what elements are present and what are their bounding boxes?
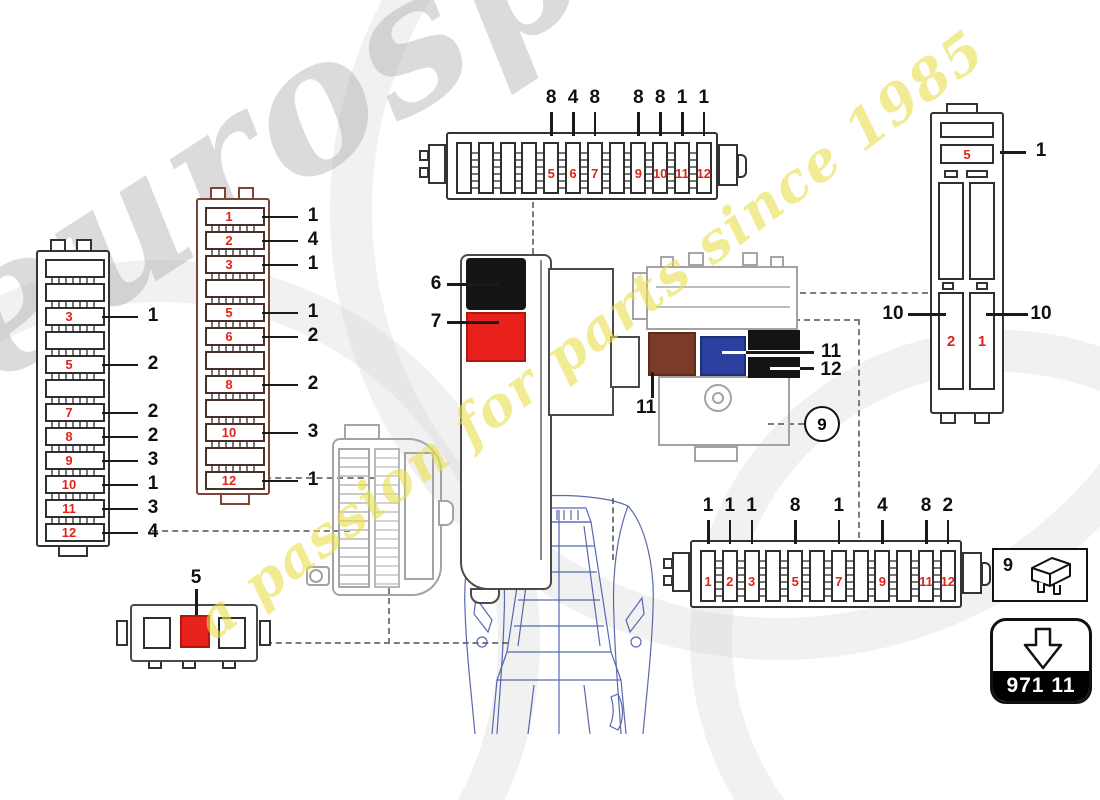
- leader-line: [195, 589, 198, 615]
- leader-line: [651, 372, 654, 398]
- fuse-slot: [456, 142, 472, 194]
- fuse-slot: 10: [652, 142, 668, 194]
- part-code: 971 11: [993, 671, 1089, 701]
- leader-line: [703, 112, 706, 136]
- fuse-slot: 8: [45, 427, 105, 446]
- mounting-ear: [962, 552, 982, 594]
- fuse-slot: [500, 142, 516, 194]
- leader-line: [681, 112, 684, 136]
- latch: [966, 170, 988, 178]
- fuse-panel-right: 5 2 1: [930, 112, 1004, 414]
- connector-line: [388, 588, 390, 644]
- fuse-slot: 9: [874, 550, 890, 602]
- fuse-number: 6: [569, 166, 576, 181]
- fuse-slot: 3: [205, 255, 265, 274]
- fuse-holder-lug: [438, 500, 454, 526]
- mounting-ear: [419, 167, 429, 178]
- fuse-slot: 5: [940, 144, 994, 164]
- mounting-ear: [737, 154, 747, 178]
- callout-3[interactable]: 3: [138, 496, 168, 520]
- fuse-number: 9: [65, 453, 72, 468]
- fuse-slot: 1: [205, 207, 265, 226]
- fuse-slot: [521, 142, 537, 194]
- assembly-knob-center: [712, 392, 724, 404]
- fuse-number: 2: [225, 233, 232, 248]
- fuse-holder-ribs: [374, 448, 400, 588]
- fuse-number: 5: [963, 147, 970, 162]
- fuse-number: 3: [225, 257, 232, 272]
- fuse-slot: [218, 617, 246, 649]
- callout-4[interactable]: 4: [298, 228, 328, 252]
- leader-line: [637, 112, 640, 136]
- fuse-panel-left: 3152728293101113124: [36, 250, 110, 547]
- fuse-number: 7: [65, 405, 72, 420]
- leader-line: [262, 240, 298, 243]
- fuse-slot: [45, 259, 105, 278]
- callout-1[interactable]: 1: [298, 300, 328, 324]
- leader-line: [102, 316, 138, 319]
- leader-line: [746, 351, 814, 354]
- fuse-slot: 9: [45, 451, 105, 470]
- relay-housing-foot: [470, 588, 500, 604]
- leader-line: [262, 432, 298, 435]
- fuse-number: 6: [225, 329, 232, 344]
- connector-line: [800, 292, 928, 294]
- fuse-number: 8: [225, 377, 232, 392]
- fuse-number: 5: [548, 166, 555, 181]
- callout-10-right[interactable]: 10: [1026, 302, 1056, 326]
- assembly-tab: [688, 252, 704, 266]
- leader-line: [102, 532, 138, 535]
- leader-line: [102, 364, 138, 367]
- leader-line: [925, 520, 928, 544]
- leader-line: [262, 336, 298, 339]
- fuse-slot: 6: [565, 142, 581, 194]
- leader-line: [659, 112, 662, 136]
- leader-line: [102, 436, 138, 439]
- fuse-number: 2: [947, 333, 955, 350]
- fuse-slot: [853, 550, 869, 602]
- fuse-strip-top: 58647898108111121: [446, 132, 718, 200]
- fuse-number: 10: [62, 477, 76, 492]
- callout-8[interactable]: 8: [780, 494, 810, 518]
- fuse-slot: 7: [831, 550, 847, 602]
- fuse-slot: [45, 331, 105, 350]
- fuse-number: 10: [653, 166, 667, 181]
- assembly-foot: [694, 446, 738, 462]
- leader-line: [102, 412, 138, 415]
- leader-line: [262, 312, 298, 315]
- leader-line: [947, 520, 950, 544]
- latch: [944, 170, 958, 178]
- fuse-slot: 1: [700, 550, 716, 602]
- bracket-fuse-11-blue: [700, 336, 746, 376]
- leader-line: [838, 520, 841, 544]
- mounting-ear: [428, 144, 446, 184]
- fuse-number: 7: [835, 574, 842, 589]
- leader-line: [447, 321, 499, 324]
- fuse-slot: [969, 182, 995, 280]
- mounting-ear: [718, 144, 738, 186]
- leader-line: [102, 484, 138, 487]
- fuse-slot: 5: [543, 142, 559, 194]
- fuse-number: 12: [697, 166, 711, 181]
- fuse-number: 9: [635, 166, 642, 181]
- fuse-slot: [205, 279, 265, 298]
- leader-line: [102, 460, 138, 463]
- fuse-number: 5: [65, 357, 72, 372]
- connector-line: [532, 202, 534, 254]
- fuse-slot: 8: [205, 375, 265, 394]
- fuse-slot: 11: [674, 142, 690, 194]
- callout-circle-9[interactable]: 9: [804, 406, 840, 442]
- callout-3[interactable]: 3: [138, 448, 168, 472]
- callout-1[interactable]: 1: [298, 468, 328, 492]
- callout-2[interactable]: 2: [138, 352, 168, 376]
- fuse-number: 3: [65, 309, 72, 324]
- callout-1[interactable]: 1: [824, 494, 854, 518]
- fuse-slot: [896, 550, 912, 602]
- fuse-number: 11: [919, 574, 933, 589]
- fuse-number: 5: [225, 305, 232, 320]
- fuse-slot: 7: [587, 142, 603, 194]
- fuse-slot: [205, 351, 265, 370]
- fuse-number: 9: [879, 574, 886, 589]
- fuse-slot: 5: [787, 550, 803, 602]
- leader-line: [751, 520, 754, 544]
- assembly-left-ear: [632, 272, 648, 320]
- leader-line: [1000, 151, 1026, 154]
- fuse-slot: 1: [969, 292, 995, 390]
- fuse-number: 2: [726, 574, 733, 589]
- fuse-slot: 2: [938, 292, 964, 390]
- leader-line: [986, 313, 1028, 316]
- callout-2[interactable]: 2: [138, 424, 168, 448]
- callout-5[interactable]: 5: [181, 566, 211, 590]
- fuse-slot: [765, 550, 781, 602]
- fuse-number: 12: [941, 574, 955, 589]
- bracket-fuse-12-black: [748, 330, 800, 350]
- mounting-lug: [116, 620, 128, 646]
- callout-1[interactable]: 1: [737, 494, 767, 518]
- leader-line: [729, 520, 732, 544]
- latch: [976, 282, 988, 290]
- mounting-ear: [663, 575, 673, 586]
- fuse-slot: 2: [205, 231, 265, 250]
- fuse-slot: [205, 399, 265, 418]
- fuse-slot: 12: [696, 142, 712, 194]
- callout-2[interactable]: 2: [298, 372, 328, 396]
- callout-1[interactable]: 1: [689, 86, 719, 110]
- callout-1[interactable]: 1: [138, 472, 168, 496]
- leader-line: [262, 384, 298, 387]
- mounting-lug: [259, 620, 271, 646]
- callout-4[interactable]: 4: [138, 520, 168, 544]
- callout-6[interactable]: 6: [421, 272, 451, 296]
- mounting-ear: [419, 150, 429, 161]
- leader-line: [262, 480, 298, 483]
- fuse-slot: [45, 379, 105, 398]
- arrow-down-icon: [1020, 627, 1066, 671]
- fuse-slot: 9: [630, 142, 646, 194]
- callout-8[interactable]: 8: [580, 86, 610, 110]
- assembly-top-box: [646, 266, 798, 330]
- callout-7[interactable]: 7: [421, 310, 451, 334]
- fuse-holder-ribs: [338, 448, 370, 588]
- callout-2[interactable]: 2: [298, 324, 328, 348]
- small-box-fuse-5: [180, 615, 210, 648]
- part-code-box: 971 11: [990, 618, 1092, 704]
- fuse-number: 7: [591, 166, 598, 181]
- fuse-slot: 10: [45, 475, 105, 494]
- fuse-slot: [940, 122, 994, 138]
- leader-line: [262, 264, 298, 267]
- fuse-number: 1: [704, 574, 711, 589]
- fuse-slot: 12: [205, 471, 265, 490]
- leader-line: [594, 112, 597, 136]
- fuse-number: 3: [748, 574, 755, 589]
- leader-line: [550, 112, 553, 136]
- relay-housing-column: [548, 268, 614, 416]
- fuse-number: 1: [978, 333, 986, 350]
- callout-1[interactable]: 1: [298, 252, 328, 276]
- fuse-slot: 11: [45, 499, 105, 518]
- fuse-slot: [609, 142, 625, 194]
- leader-line: [707, 520, 710, 544]
- fuse-panel-brown: 112431516282103121: [196, 198, 270, 495]
- blade-fuse-icon: [1022, 552, 1080, 600]
- fuse-number: 11: [675, 166, 689, 181]
- fuse-slot: [938, 182, 964, 280]
- legend-ref: 9: [1003, 555, 1013, 576]
- fuse-slot: 2: [722, 550, 738, 602]
- fuse-slot: [143, 617, 171, 649]
- fuse-slot: 7: [45, 403, 105, 422]
- callout-1[interactable]: 1: [138, 304, 168, 328]
- leader-line: [572, 112, 575, 136]
- fuse-slot: 3: [45, 307, 105, 326]
- fuse-slot: [809, 550, 825, 602]
- mounting-ear: [981, 562, 991, 586]
- fuse-slot: 6: [205, 327, 265, 346]
- mounting-ear: [663, 558, 673, 569]
- relay-housing-line: [540, 260, 542, 560]
- leader-line: [881, 520, 884, 544]
- leader-line: [447, 283, 499, 286]
- fuse-number: 12: [62, 525, 76, 540]
- fuse-number: 1: [225, 209, 232, 224]
- fuse-holder-screw: [309, 569, 323, 583]
- relay-item-7: [466, 312, 526, 362]
- leader-line: [102, 508, 138, 511]
- callout-1[interactable]: 1: [1026, 139, 1056, 163]
- fuse-number: 12: [222, 473, 236, 488]
- leader-line: [262, 216, 298, 219]
- fuse-strip-bottom: 112131587194118122: [690, 540, 962, 608]
- leader-line-white: [722, 351, 746, 354]
- fuse-slot: 3: [744, 550, 760, 602]
- callout-3[interactable]: 3: [298, 420, 328, 444]
- assembly-top-line: [656, 286, 790, 288]
- assembly-top-line: [656, 306, 790, 308]
- callout-1[interactable]: 1: [298, 204, 328, 228]
- fuse-slot: [205, 447, 265, 466]
- fuse-slot: 11: [918, 550, 934, 602]
- assembly-tab: [742, 252, 758, 266]
- relay-housing-wing: [610, 336, 640, 388]
- fuse-slot: 10: [205, 423, 265, 442]
- fuse-slot: [45, 283, 105, 302]
- mounting-ear: [672, 552, 690, 592]
- parts-diagram-canvas: eurospares: [0, 0, 1100, 800]
- latch: [942, 282, 954, 290]
- fuse-number: 8: [65, 429, 72, 444]
- leader-line-white: [770, 367, 800, 370]
- callout-2[interactable]: 2: [138, 400, 168, 424]
- fuse-slot: 12: [45, 523, 105, 542]
- callout-10-left[interactable]: 10: [878, 302, 908, 326]
- callout-2[interactable]: 2: [933, 494, 963, 518]
- fuse-slot: 12: [940, 550, 956, 602]
- fuse-slot: 5: [45, 355, 105, 374]
- fuse-number: 5: [792, 574, 799, 589]
- bracket-fuse-11-brown: [648, 332, 696, 376]
- leader-line: [908, 313, 946, 316]
- leader-line: [800, 367, 814, 370]
- fuse-slot: 5: [205, 303, 265, 322]
- fuse-number: 10: [222, 425, 236, 440]
- callout-4[interactable]: 4: [867, 494, 897, 518]
- legend-box: 9: [992, 548, 1088, 602]
- callout-12[interactable]: 12: [816, 358, 846, 382]
- leader-line: [794, 520, 797, 544]
- fuse-holder-panel: [404, 452, 434, 580]
- fuse-number: 11: [62, 501, 76, 516]
- callout-11-left[interactable]: 11: [631, 396, 661, 420]
- fuse-slot: [478, 142, 494, 194]
- connector-line: [858, 319, 860, 538]
- connector-line: [152, 530, 350, 532]
